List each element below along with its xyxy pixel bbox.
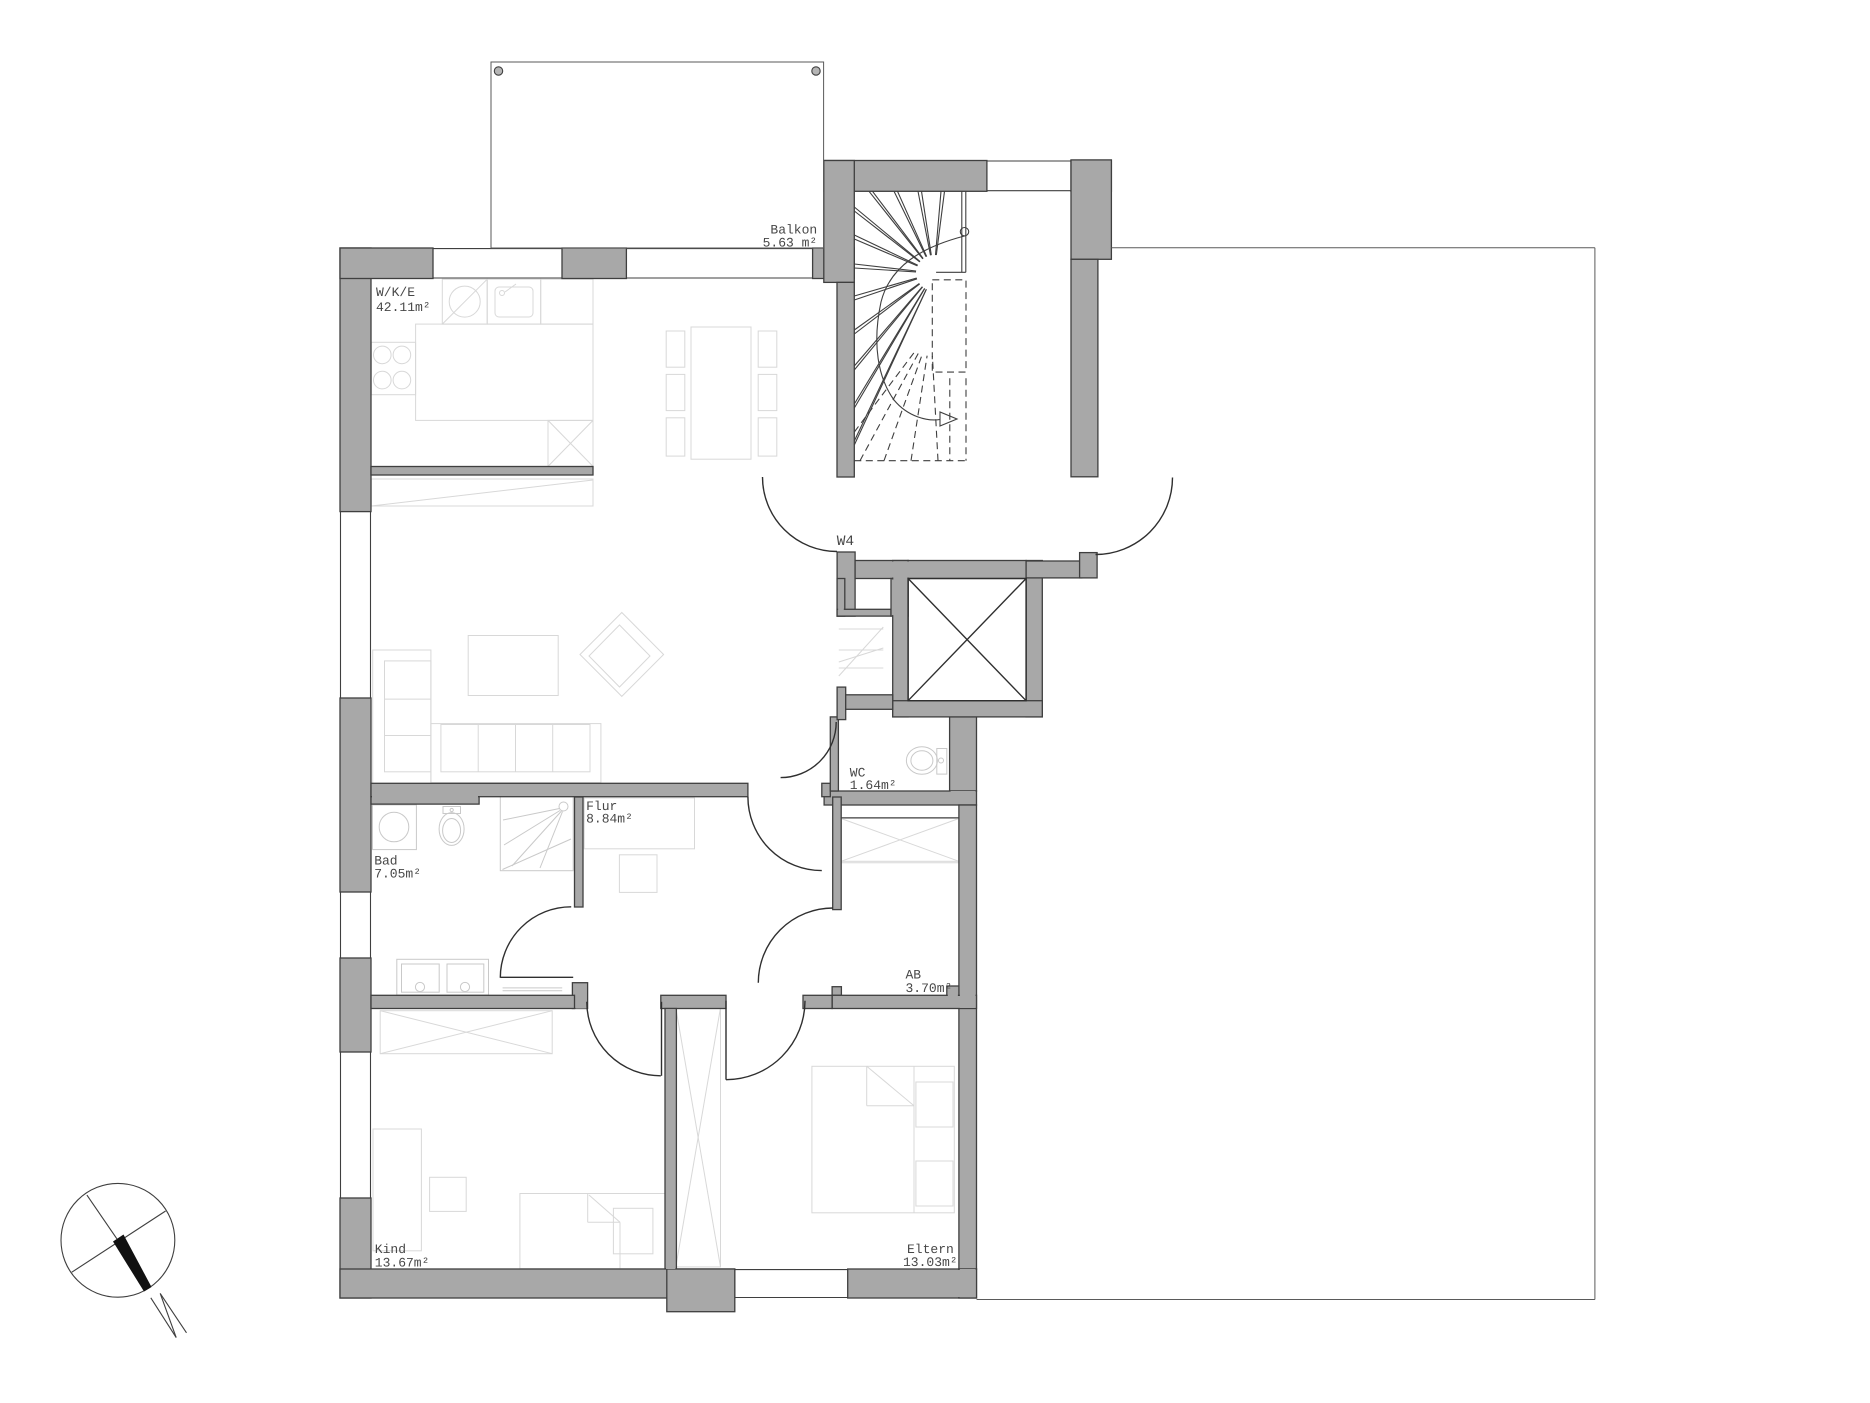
svg-text:8.84m²: 8.84m² [586, 812, 633, 827]
svg-text:13.67m²: 13.67m² [375, 1256, 430, 1271]
svg-text:5.63 m²: 5.63 m² [763, 236, 818, 251]
svg-text:W4: W4 [837, 534, 854, 550]
svg-text:1.64m²: 1.64m² [850, 778, 897, 793]
svg-text:42.11m²: 42.11m² [376, 300, 431, 315]
svg-text:3.70m²: 3.70m² [906, 981, 953, 996]
svg-text:W/K/E: W/K/E [376, 285, 415, 300]
svg-text:7.05m²: 7.05m² [374, 867, 421, 882]
svg-text:13.03m²: 13.03m² [903, 1255, 958, 1270]
